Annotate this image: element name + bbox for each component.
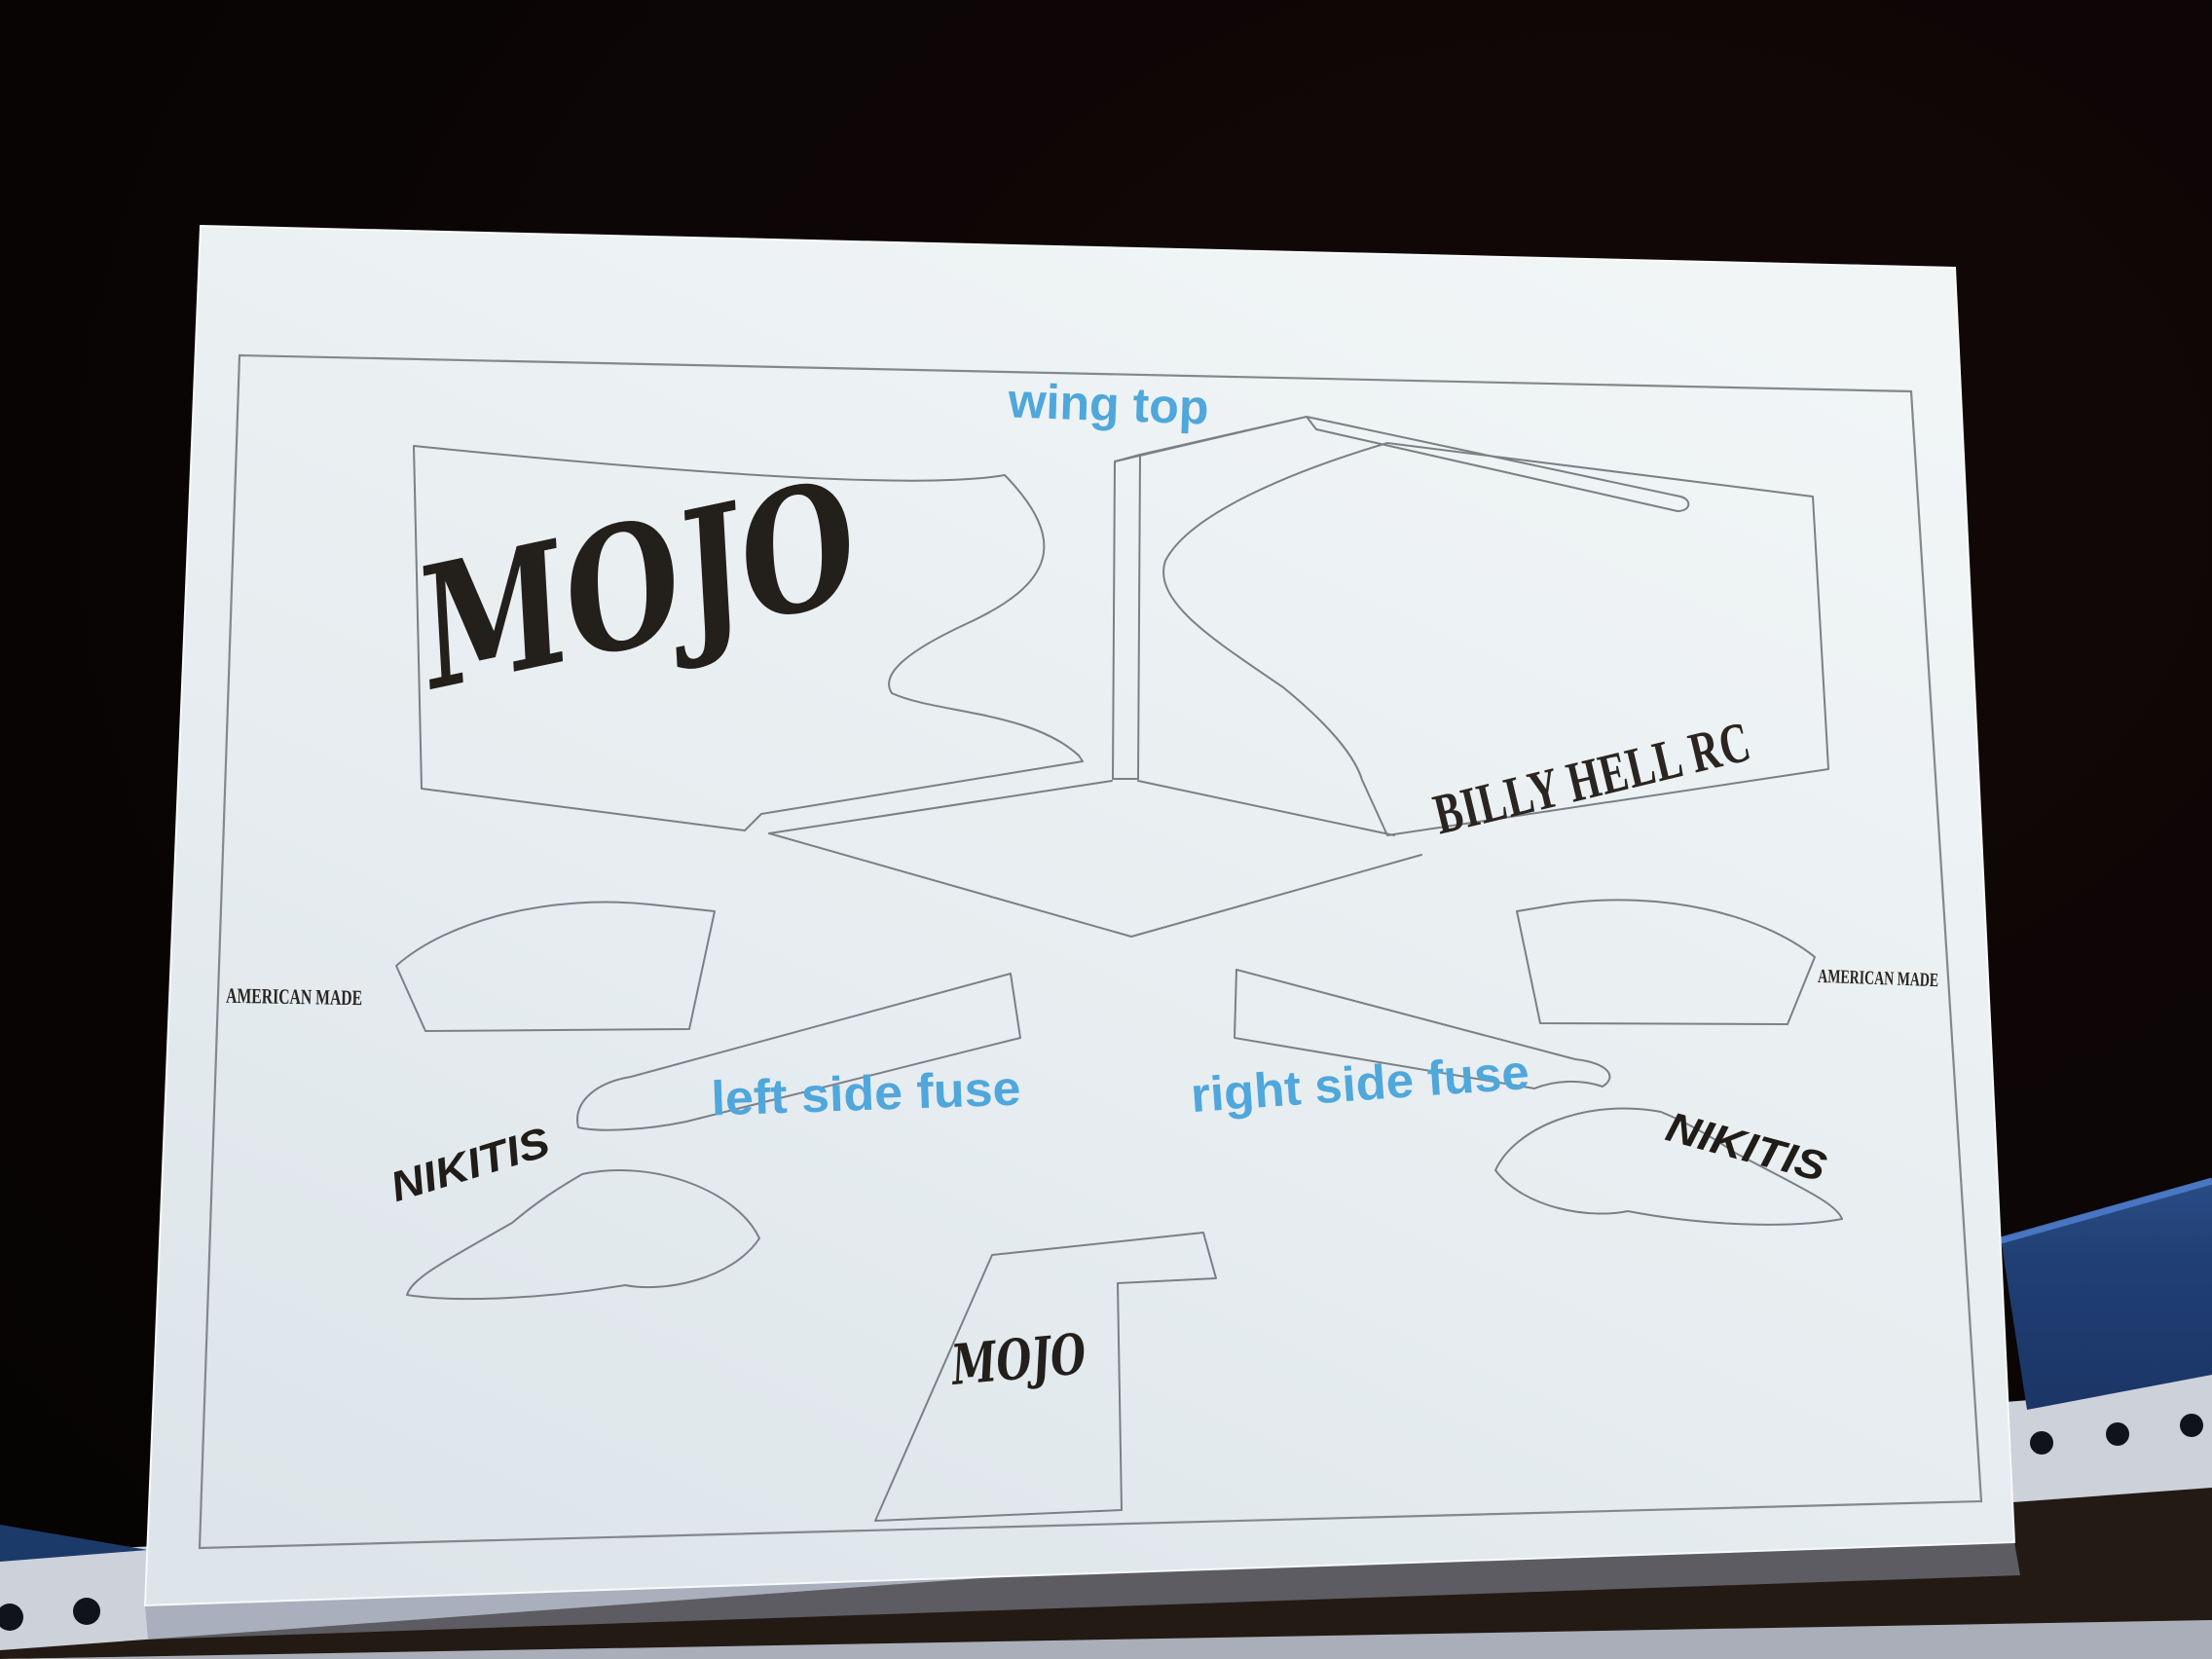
photo-canvas: MOJO BILLY HELL RC AMERICAN MADE AMERICA…	[0, 0, 2212, 1659]
american-made-left-decal: AMERICAN MADE	[226, 983, 362, 1010]
wing-top-label: wing top	[1007, 373, 1210, 434]
american-made-right-decal: AMERICAN MADE	[1818, 966, 1939, 991]
photo-of-decal-sheet: MOJO BILLY HELL RC AMERICAN MADE AMERICA…	[0, 0, 2212, 1659]
mojo-fin-decal: MOJO	[947, 1321, 1088, 1398]
left-side-fuse-label: left side fuse	[711, 1060, 1022, 1125]
